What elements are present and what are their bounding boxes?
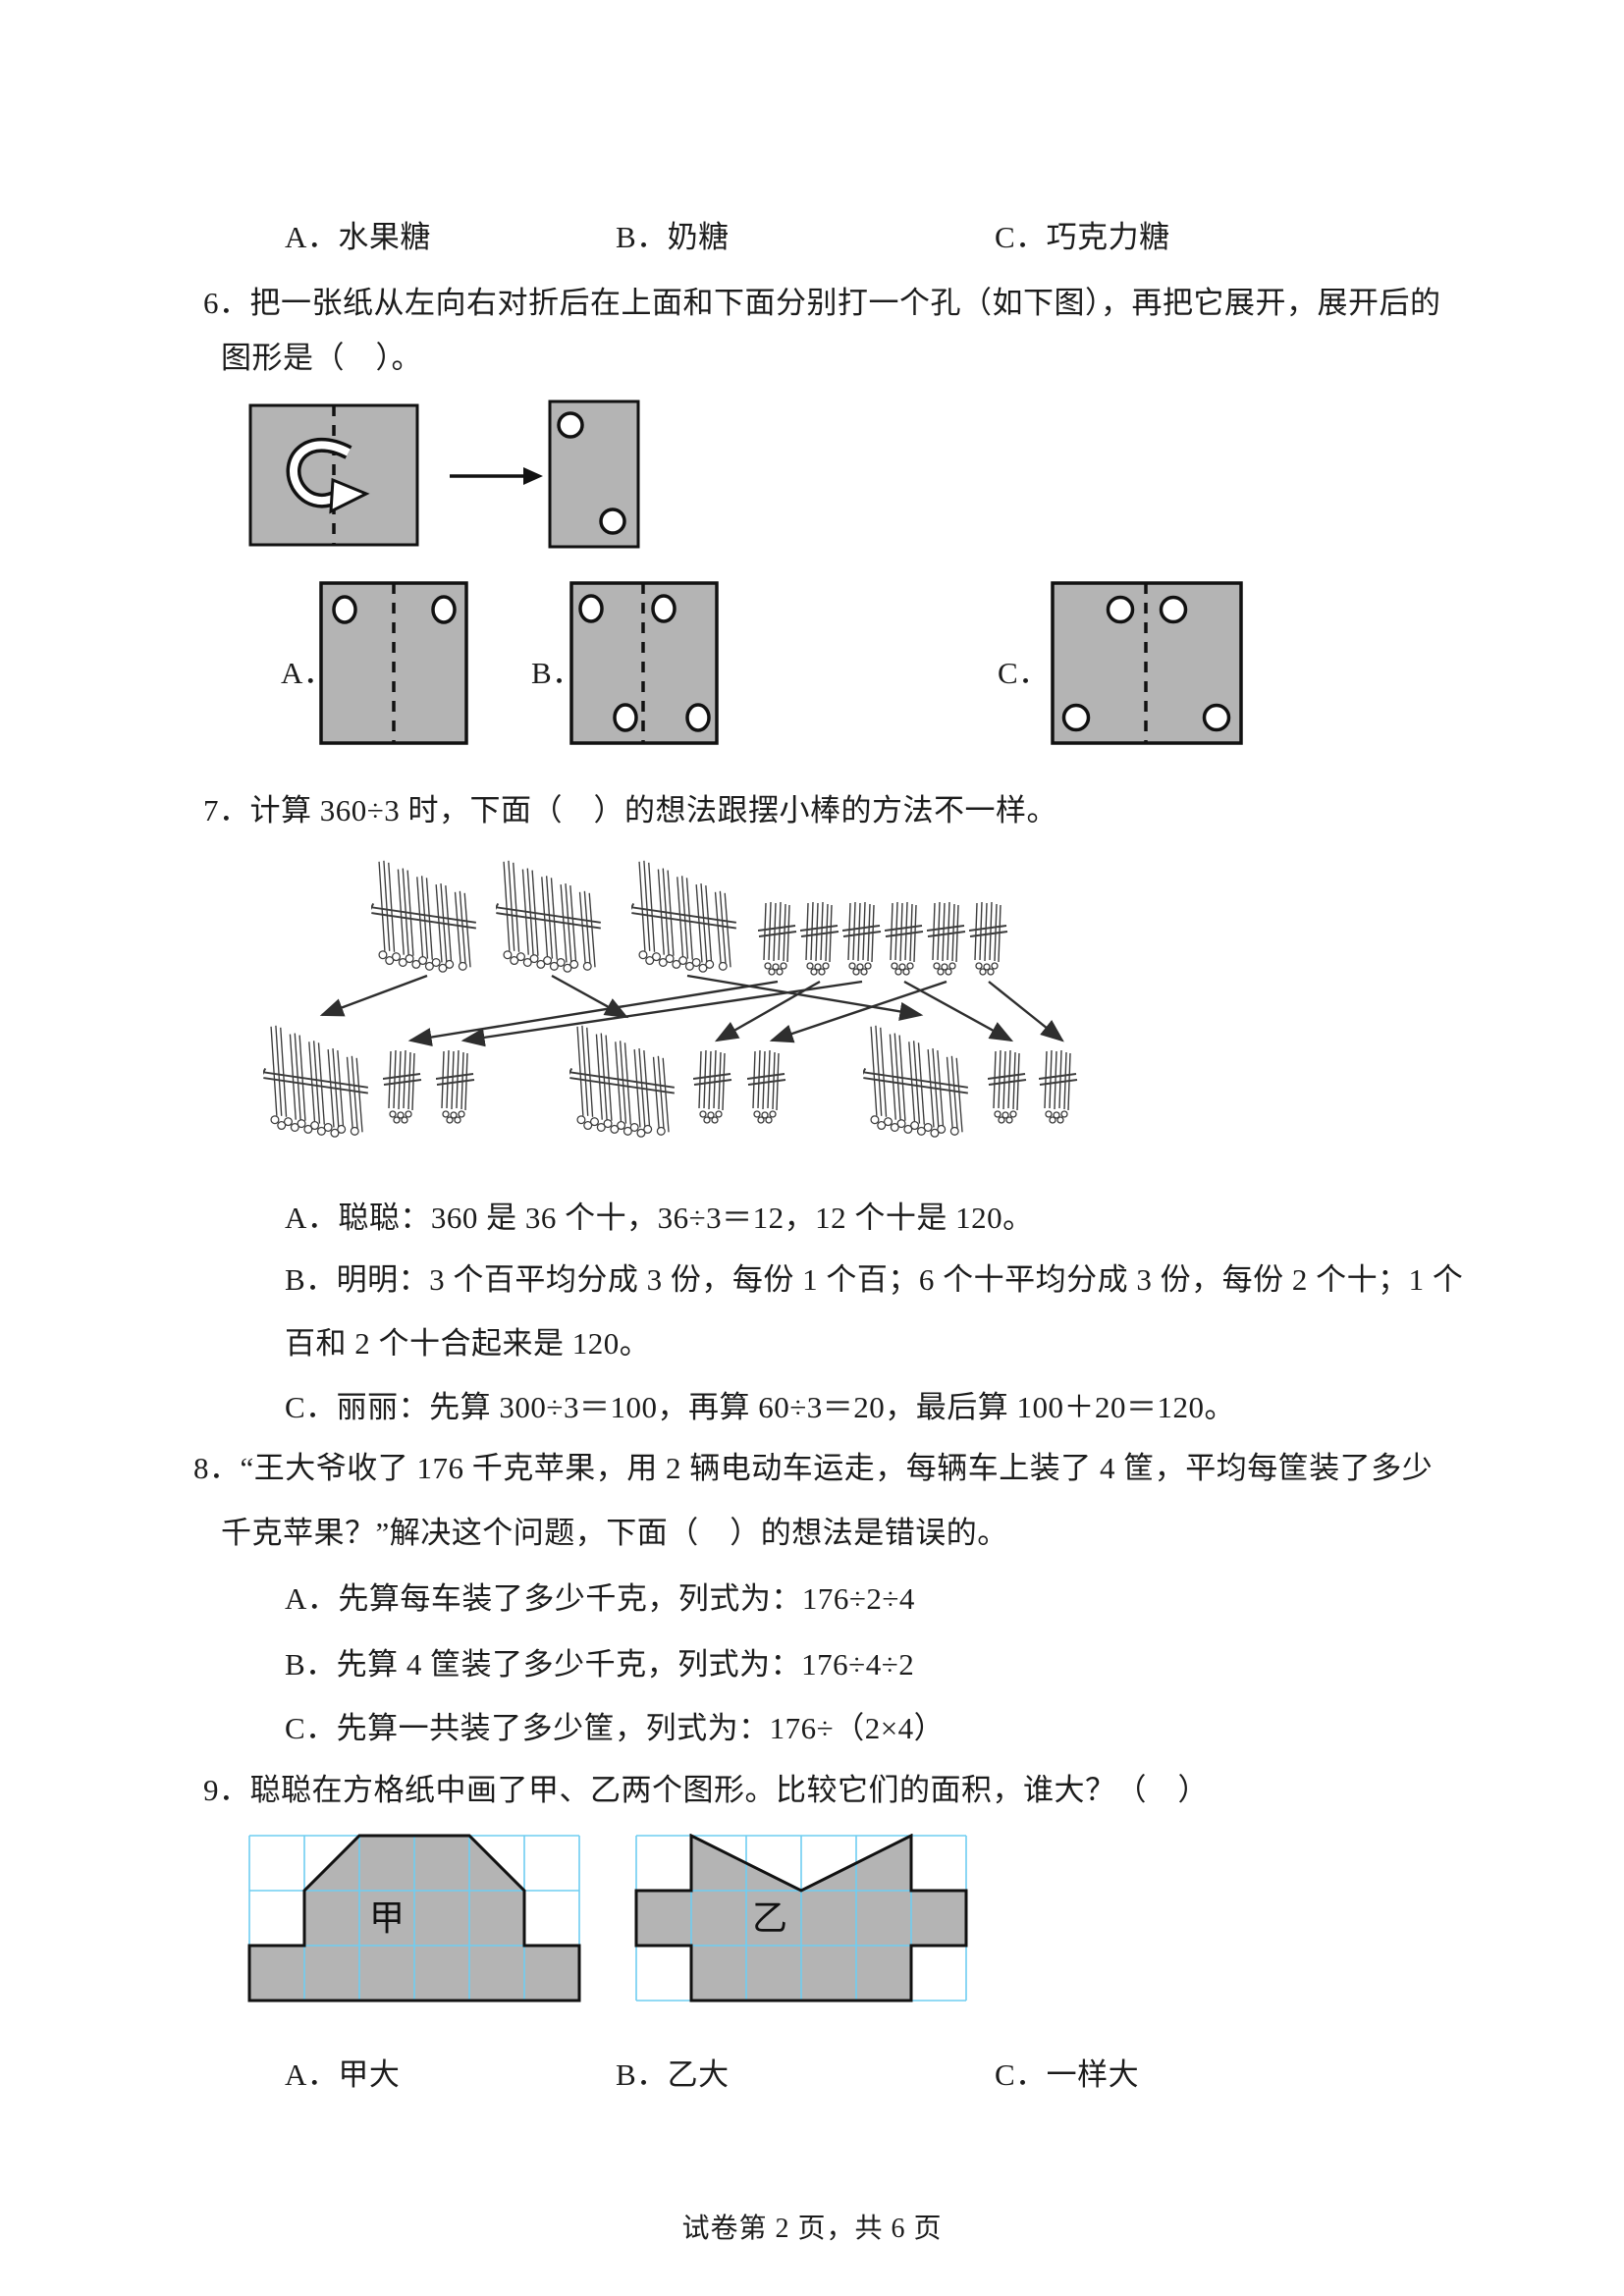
q8-stem-line2: 千克苹果？”解决这个问题，下面（ ）的想法是错误的。 xyxy=(221,1508,1008,1552)
q5-option-c: C．巧克力糖 xyxy=(995,212,1170,256)
bundle-hundred-icon xyxy=(369,861,475,972)
bundle-hundred-icon xyxy=(568,1026,674,1137)
test-paper-page: A．水果糖 B．奶糖 C．巧克力糖 6．把一张纸从左向右对折后在上面和下面分别打… xyxy=(0,0,1624,2296)
punched-hole-icon xyxy=(559,413,582,437)
punched-hole-icon xyxy=(1205,706,1229,730)
q8-option-a: A．先算每车装了多少千克，列式为：176÷2÷4 xyxy=(285,1574,915,1618)
q7-option-b-line1: B．明明：3 个百平均分成 3 份，每份 1 个百；6 个十平均分成 3 份，每… xyxy=(285,1255,1463,1299)
label-yi: 乙 xyxy=(752,1898,787,1938)
bundle-hundred-icon xyxy=(261,1026,367,1137)
label-jia: 甲 xyxy=(369,1898,405,1938)
q9-figure-yi: 乙 xyxy=(634,1834,968,2002)
q8-stem-line1: 8．“王大爷收了 176 千克苹果，用 2 辆电动车运走，每辆车上装了 4 筐，… xyxy=(193,1443,1433,1487)
q7-stem: 7．计算 360÷3 时，下面（ ）的想法跟摆小棒的方法不一样。 xyxy=(203,785,1057,829)
bundle-ten-icon xyxy=(885,902,923,975)
bundle-ten-icon xyxy=(436,1050,474,1123)
punched-hole-icon xyxy=(433,597,455,622)
bundle-hundred-icon xyxy=(494,861,600,972)
bundle-ten-icon xyxy=(1039,1050,1077,1123)
bundle-ten-icon xyxy=(693,1050,731,1123)
q9-option-b: B．乙大 xyxy=(616,2050,730,2094)
q9-stem: 9．聪聪在方格纸中画了甲、乙两个图形。比较它们的面积，谁大？（ ） xyxy=(203,1765,1209,1809)
bundle-ten-icon xyxy=(927,902,965,975)
q6-option-b-figure xyxy=(569,581,719,746)
q9-option-a: A．甲大 xyxy=(285,2050,400,2094)
punched-hole-icon xyxy=(1162,598,1186,622)
punched-hole-icon xyxy=(601,509,624,533)
page-footer: 试卷第 2 页，共 6 页 xyxy=(0,2207,1624,2246)
q5-option-a: A．水果糖 xyxy=(285,212,431,256)
bundle-ten-icon xyxy=(969,902,1007,975)
punched-hole-icon xyxy=(580,596,602,621)
punched-hole-icon xyxy=(615,705,636,730)
punched-hole-icon xyxy=(334,597,355,622)
distribution-arrows xyxy=(322,976,1062,1041)
q6-option-c-figure xyxy=(1051,581,1243,746)
right-arrow-icon xyxy=(450,467,543,485)
sticks-bundles-figure xyxy=(245,846,1414,1175)
q6-option-a-figure xyxy=(319,581,468,746)
bundle-ten-icon xyxy=(800,902,839,975)
q6-stem-line2: 图形是（ ）。 xyxy=(221,333,422,377)
paper-folding-diagram xyxy=(248,398,661,555)
bundle-ten-icon xyxy=(988,1050,1026,1123)
punched-hole-icon xyxy=(1064,706,1089,730)
q7-option-a: A．聪聪：360 是 36 个十，36÷3＝12，12 个十是 120。 xyxy=(285,1193,1034,1237)
q8-option-b: B．先算 4 筐装了多少千克，列式为：176÷4÷2 xyxy=(285,1639,914,1683)
bundle-hundred-icon xyxy=(861,1026,967,1137)
punched-hole-icon xyxy=(1109,598,1133,622)
bundle-hundred-icon xyxy=(629,861,735,972)
q9-figure-jia: 甲 xyxy=(247,1834,581,2002)
punched-hole-icon xyxy=(653,596,675,621)
q5-option-b: B．奶糖 xyxy=(616,212,730,256)
bundle-ten-icon xyxy=(758,902,796,975)
q6-stem-line1: 6．把一张纸从左向右对折后在上面和下面分别打一个孔（如下图），再把它展开，展开后… xyxy=(203,278,1441,322)
q6-option-c-label: C． xyxy=(998,648,1050,692)
q9-option-c: C．一样大 xyxy=(995,2050,1139,2094)
q8-option-c: C．先算一共装了多少筐，列式为：176÷（2×4） xyxy=(285,1703,945,1747)
bundle-ten-icon xyxy=(383,1050,421,1123)
punched-hole-icon xyxy=(687,705,709,730)
bundle-ten-icon xyxy=(747,1050,785,1123)
q7-option-c: C．丽丽：先算 300÷3＝100，再算 60÷3＝20，最后算 100＋20＝… xyxy=(285,1382,1235,1426)
q7-option-b-line2: 百和 2 个十合起来是 120。 xyxy=(285,1318,650,1362)
bundle-ten-icon xyxy=(842,902,881,975)
